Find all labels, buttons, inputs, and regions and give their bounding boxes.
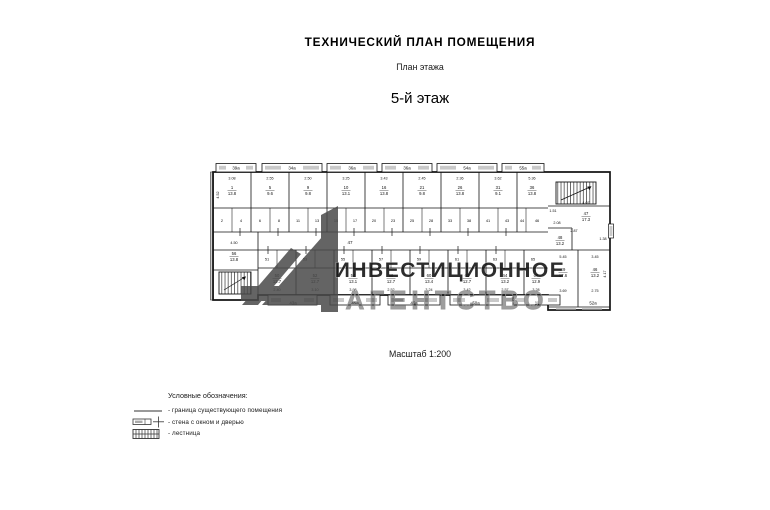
- edge-label: 54а: [463, 165, 471, 170]
- edge-label: 39а: [232, 165, 240, 170]
- edge-label: 55а: [519, 165, 527, 170]
- room-number: 9: [307, 185, 310, 190]
- room-number: 36: [530, 185, 535, 190]
- room-number: 56: [232, 251, 237, 256]
- dimension-label: 3.25: [342, 177, 349, 181]
- stairs-icon: [131, 428, 168, 440]
- corridor-number: 47: [347, 240, 353, 245]
- legend-row-wall-window-door: - стена с окном и дверью: [131, 417, 361, 429]
- cell-number: 43: [505, 218, 509, 223]
- edge-label: 34а: [288, 165, 296, 170]
- dimension-label: 2.50: [304, 177, 311, 181]
- cell-number: 13: [315, 218, 319, 223]
- room-number: 47: [584, 211, 589, 216]
- edge-label: 36а: [348, 165, 356, 170]
- edge-label: 52а: [589, 300, 597, 305]
- cell-number: 33: [448, 218, 452, 223]
- dimension-label: 4.50: [230, 241, 237, 245]
- room-area: 9.6: [267, 191, 273, 196]
- cell-number: 8: [278, 218, 280, 223]
- cell-number: 25: [410, 218, 414, 223]
- dimension-label: 3.45: [591, 255, 598, 259]
- watermark-text-line2: АГЕНТСТВО: [346, 285, 549, 315]
- dimension-label: 2.55: [266, 177, 273, 181]
- room-area: 13.1: [342, 191, 351, 196]
- edge-label: 36а: [403, 165, 411, 170]
- cell-number: 20: [372, 218, 377, 223]
- cell-number: 51: [265, 256, 269, 261]
- room-number: 5: [269, 185, 272, 190]
- boundary-line-icon: [131, 406, 168, 416]
- dimension-label: 1.51: [549, 209, 556, 213]
- cell-number: 46: [535, 218, 539, 223]
- legend: Условные обозначения: - граница существу…: [131, 391, 361, 440]
- cell-number: 44: [520, 218, 525, 223]
- room-area: 13.8: [230, 257, 239, 262]
- legend-item-label: - лестница: [168, 430, 200, 437]
- room-number: 46: [593, 267, 598, 272]
- cell-number: 11: [296, 218, 300, 223]
- cell-number: 17: [353, 218, 357, 223]
- room-area: 13.8: [528, 191, 537, 196]
- scale-note: Масштаб 1:200: [70, 349, 770, 359]
- floor-plan-drawing: 113.859.699.81013.11613.8219.82613.8319.…: [0, 0, 770, 510]
- dimension-label: 3.62: [494, 177, 501, 181]
- legend-heading: Условные обозначения:: [168, 391, 361, 400]
- room-area: 9.1: [495, 191, 501, 196]
- dimension-label: 2.08: [553, 221, 560, 225]
- cell-number: 2: [221, 218, 223, 223]
- room-number: 31: [496, 185, 501, 190]
- dimension-label: 4.17: [603, 270, 607, 277]
- dimension-label: 2.45: [418, 177, 425, 181]
- legend-row-boundary: - граница существующего помещения: [131, 405, 361, 417]
- dimension-label: 2.87: [570, 229, 577, 233]
- dimension-label: 4.07: [582, 201, 589, 205]
- watermark-text-line1: ИНВЕСТИЦИОННОЕ: [335, 259, 565, 282]
- cell-number: 28: [429, 218, 433, 223]
- room-number: 1: [231, 185, 234, 190]
- cell-number: 38: [467, 218, 471, 223]
- legend-row-stairs: - лестница: [131, 428, 361, 440]
- room-area: 13.8: [380, 191, 389, 196]
- cell-number: 4: [240, 218, 243, 223]
- window-right: [609, 224, 614, 238]
- room-area: 13.8: [456, 191, 465, 196]
- windows-top: [219, 166, 541, 170]
- room-area: 9.8: [305, 191, 311, 196]
- staircase-right: [556, 182, 596, 204]
- room-number: 10: [344, 185, 349, 190]
- cell-number: 6: [259, 218, 261, 223]
- legend-item-label: - граница существующего помещения: [168, 407, 282, 414]
- investment-agency-logo: [241, 206, 338, 312]
- dimension-label: 1.38: [599, 237, 606, 241]
- dimension-label: 3.43: [380, 177, 387, 181]
- cell-number: 23: [391, 218, 395, 223]
- room-area: 17.3: [582, 217, 591, 222]
- dimension-label: 5.36: [528, 177, 535, 181]
- room-area: 13.2: [591, 273, 600, 278]
- room-number: 16: [382, 185, 387, 190]
- room-number: 21: [420, 185, 425, 190]
- legend-item-label: - стена с окном и дверью: [168, 419, 244, 426]
- wall-window-door-icon: [131, 416, 168, 428]
- room-area: 13.8: [228, 191, 237, 196]
- room-area: 9.8: [419, 191, 425, 196]
- dimension-label: 2.75: [591, 289, 598, 293]
- cell-number: 41: [486, 218, 490, 223]
- document-page: ТЕХНИЧЕСКИЙ ПЛАН ПОМЕЩЕНИЯ План этажа 5-…: [0, 0, 770, 510]
- dimension-label: 2.36: [456, 177, 463, 181]
- dimension-label: 3.08: [228, 177, 235, 181]
- room-number: 48: [558, 235, 563, 240]
- dimension-label: 3.69: [559, 289, 566, 293]
- dimension-label: 4.52: [216, 191, 220, 198]
- room-number: 26: [458, 185, 463, 190]
- room-area: 13.2: [556, 241, 565, 246]
